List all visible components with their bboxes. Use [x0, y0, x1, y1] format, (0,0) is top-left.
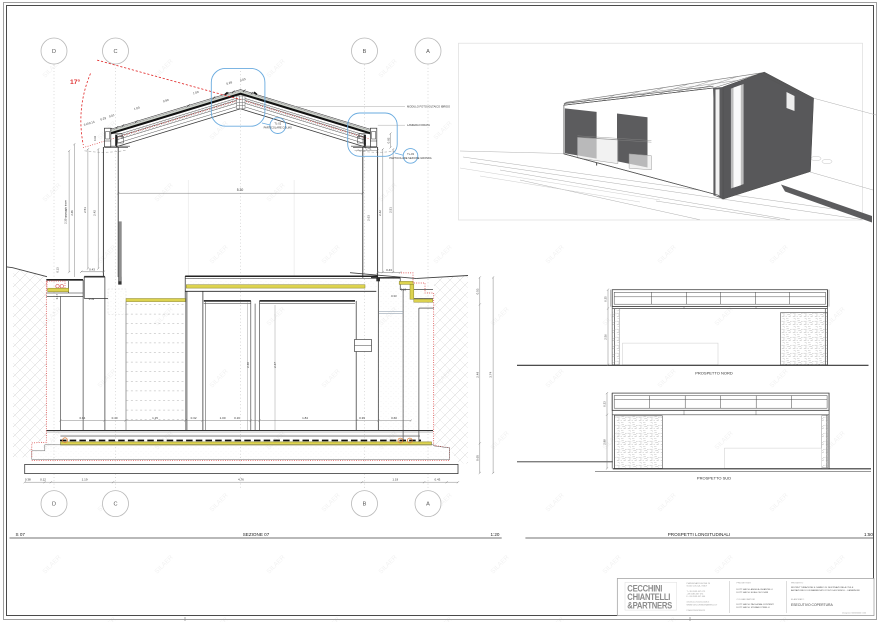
svg-text:0.13: 0.13 [55, 267, 59, 273]
svg-text:MODULO FOTOVOLTAICO IBRIDO: MODULO FOTOVOLTAICO IBRIDO [407, 104, 450, 108]
svg-text:0.33: 0.33 [89, 297, 95, 301]
svg-text:2.51: 2.51 [83, 207, 87, 213]
svg-text:PARTICOLARE SEZIONE GRONDA: PARTICOLARE SEZIONE GRONDA [389, 156, 432, 160]
svg-text:COLLABORATORI: COLLABORATORI [737, 598, 756, 601]
svg-text:0.43: 0.43 [386, 268, 392, 272]
svg-text:DOTT. ARCH. STEFANO PINELLI: DOTT. ARCH. STEFANO PINELLI [737, 606, 771, 609]
svg-text:C: C [113, 49, 117, 55]
svg-text:0.92: 0.92 [387, 137, 391, 143]
svg-text:0.33: 0.33 [391, 294, 397, 298]
svg-text:2.49: 2.49 [475, 372, 479, 378]
svg-text:F +39 0583 467 406: F +39 0583 467 406 [687, 596, 707, 598]
svg-text:2.46: 2.46 [70, 210, 74, 216]
svg-text:PROSPETTI LONGITUDINALI: PROSPETTI LONGITUDINALI [668, 532, 731, 537]
svg-text:0.39: 0.39 [359, 416, 365, 420]
svg-text:0.40: 0.40 [112, 416, 118, 420]
svg-text:2.88: 2.88 [602, 439, 606, 445]
svg-text:2.63: 2.63 [367, 215, 371, 221]
svg-text:0.53: 0.53 [475, 288, 479, 294]
svg-text:&PARTNERS: &PARTNERS [627, 600, 672, 611]
svg-text:RISTRUTTURAZIONE E CAMBIO D: RISTRUTTURAZIONE E CAMBIO DI DESTINAZION… [791, 586, 854, 589]
svg-text:info@cecchinichiantelli.it: info@cecchinichiantelli.it [687, 601, 710, 604]
svg-text:A: A [426, 502, 430, 508]
svg-text:1.19: 1.19 [82, 478, 88, 482]
svg-text:B: B [363, 502, 367, 508]
svg-text:B: B [363, 49, 367, 55]
svg-text:0.41: 0.41 [366, 146, 372, 150]
svg-text:DOTT. ARCH. ANGELA CHIANTELLI: DOTT. ARCH. ANGELA CHIANTELLI [737, 588, 773, 591]
svg-text:1.00: 1.00 [220, 416, 226, 420]
svg-text:ABITAZIONE DI UN FABBRICATO PO: ABITAZIONE DI UN FABBRICATO POSTO A FORN… [791, 589, 860, 592]
svg-text:PROSPETTO NORD: PROSPETTO NORD [695, 370, 733, 375]
svg-text:PROSPETTO SUD: PROSPETTO SUD [697, 475, 731, 480]
svg-text:WWW.CECCHINICHIANTELLI.IT: WWW.CECCHINICHIANTELLI.IT [687, 603, 719, 606]
svg-text:0.60: 0.60 [391, 416, 397, 420]
svg-text:SEZIONE 07: SEZIONE 07 [243, 532, 270, 537]
svg-text:0.16: 0.16 [234, 416, 240, 420]
svg-text:1.19: 1.19 [392, 478, 398, 482]
svg-text:0.38: 0.38 [25, 478, 31, 482]
svg-text:C: C [113, 502, 117, 508]
svg-text:1:20: 1:20 [491, 532, 500, 537]
svg-text:PIAZZA NAPOLEONE 20: PIAZZA NAPOLEONE 20 [687, 582, 711, 585]
svg-text:2.51: 2.51 [388, 207, 392, 213]
svg-text:0.43: 0.43 [89, 267, 95, 271]
svg-text:1:50: 1:50 [864, 532, 873, 537]
svg-text:S 07: S 07 [16, 532, 26, 537]
svg-text:0.12: 0.12 [40, 478, 46, 482]
svg-text:0.17: 0.17 [55, 293, 59, 299]
svg-text:17°: 17° [70, 78, 81, 86]
svg-text:0.19: 0.19 [401, 287, 407, 291]
svg-text:LAMIERA FORATA: LAMIERA FORATA [407, 123, 430, 127]
svg-text:0.65: 0.65 [475, 455, 479, 461]
svg-text:PROGETTO: PROGETTO [791, 583, 804, 585]
svg-text:TL-02: TL-02 [274, 122, 281, 126]
svg-text:P.IVA 01234567890123: P.IVA 01234567890123 [687, 609, 706, 612]
svg-text:0.35: 0.35 [603, 296, 607, 302]
svg-text:PROGETTISTI: PROGETTISTI [737, 583, 752, 585]
svg-text:4.76: 4.76 [238, 478, 244, 482]
svg-text:2.30 appoggio trave: 2.30 appoggio trave [64, 200, 68, 224]
svg-text:0.84: 0.84 [79, 416, 85, 420]
svg-text:2.42: 2.42 [378, 210, 382, 216]
svg-text:DOTT. ARCH. PAOLA MALCONTENTI: DOTT. ARCH. PAOLA MALCONTENTI [737, 603, 775, 606]
svg-text:2.42: 2.42 [92, 210, 96, 216]
svg-text:0.32: 0.32 [191, 416, 197, 420]
svg-text:1.15: 1.15 [152, 416, 158, 420]
svg-text:55100 LUCCA - ITALY: 55100 LUCCA - ITALY [687, 585, 708, 588]
svg-text:2.47: 2.47 [273, 362, 277, 368]
svg-text:A: A [426, 49, 430, 55]
svg-text:+39 0583 467 074: +39 0583 467 074 [687, 594, 705, 596]
svg-text:TL-03: TL-03 [407, 152, 414, 156]
svg-text:2.56: 2.56 [603, 334, 607, 340]
svg-text:5.30: 5.30 [237, 188, 244, 192]
svg-text:Disegnato il 00/00/0000 1:1: Disegnato il 00/00/0000 1:100 [842, 611, 866, 614]
svg-text:2.40: 2.40 [246, 362, 250, 368]
svg-text:D: D [52, 502, 56, 508]
svg-text:0.43: 0.43 [434, 478, 440, 482]
svg-text:PARTICOLARE COLMO: PARTICOLARE COLMO [264, 126, 292, 130]
svg-text:0.32: 0.32 [93, 135, 97, 141]
svg-text:T +39 0583 467 075: T +39 0583 467 075 [687, 591, 706, 593]
svg-text:ESECUTIVO COPERTURA: ESECUTIVO COPERTURA [791, 603, 834, 607]
svg-text:DOTT. ARCH. ELIAS CECCHINI: DOTT. ARCH. ELIAS CECCHINI [737, 591, 769, 594]
svg-text:1.84: 1.84 [302, 416, 308, 420]
svg-text:0.33: 0.33 [602, 401, 606, 407]
svg-text:ELABORATO: ELABORATO [791, 598, 804, 601]
svg-text:D: D [52, 49, 56, 55]
svg-text:3.74: 3.74 [489, 372, 493, 378]
